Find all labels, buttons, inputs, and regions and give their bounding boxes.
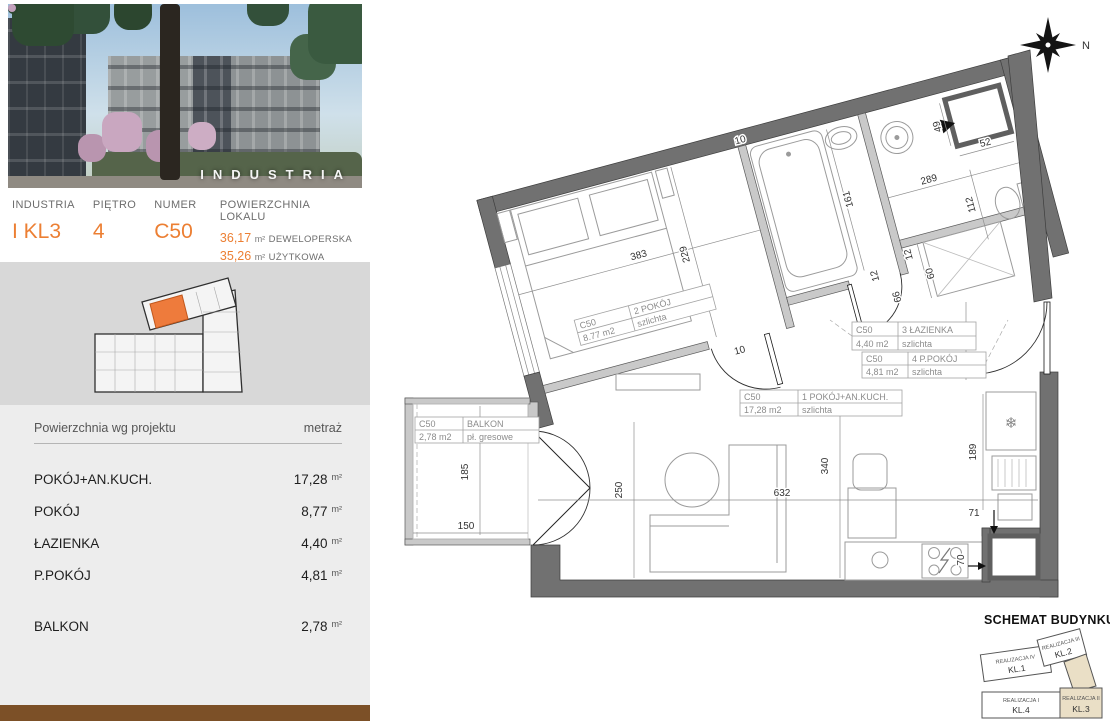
ventilation-shaft	[935, 85, 1011, 148]
dim-label: 185	[460, 463, 471, 480]
sink	[872, 552, 888, 568]
dim-label: 632	[774, 488, 791, 499]
kitchen-cabinet	[998, 494, 1032, 520]
room-label-name: 4 P.POKÓJ	[912, 354, 957, 364]
room-area: 8,77	[301, 504, 327, 519]
dim-label: 12	[869, 269, 883, 283]
room-label-name: BALKON	[467, 419, 504, 429]
dim-label: 229	[678, 244, 693, 263]
room-area-unit: m²	[332, 568, 343, 578]
room-area: 4,81	[301, 568, 327, 583]
area-table-col-right: metraż	[304, 421, 342, 435]
minimap-lower-block	[95, 334, 203, 392]
kitchen-shaft	[982, 528, 1040, 582]
bath-wc-partition	[858, 113, 909, 275]
room-label-balcony: C50 BALKON 2,78 m2 pł. gresowe	[415, 417, 539, 443]
room-label-area: 17,28 m2	[744, 405, 782, 415]
apartment-card-page: INDUSTRIA INDUSTRIA I KL3 PIĘTRO 4 NUMER…	[0, 0, 1110, 721]
developer-area-value: 36,17	[220, 231, 251, 245]
photo-blossom-trees	[8, 4, 16, 12]
floor-column: PIĘTRO 4	[93, 199, 136, 262]
usable-area-value: 35,26	[220, 249, 251, 263]
dim-label: 12	[902, 247, 916, 261]
segment-kl: KL.3	[1072, 704, 1090, 714]
segment-kl: KL.4	[1012, 705, 1030, 715]
chair	[853, 454, 887, 490]
unit-info-header: INDUSTRIA I KL3 PIĘTRO 4 NUMER C50 POWIE…	[0, 190, 370, 262]
fridge-snowflake-icon: ❄	[1005, 415, 1018, 432]
dim-label: 112	[964, 195, 979, 214]
number-column: NUMER C50	[154, 199, 202, 262]
number-label: NUMER	[154, 199, 202, 211]
room-name: POKÓJ	[34, 504, 80, 519]
room-name: BALKON	[34, 619, 89, 634]
room-label-ppokoj: C50 4 P.POKÓJ 4,81 m2 szlichta	[862, 352, 986, 378]
compass-north-label: N	[1082, 40, 1090, 52]
room-name: P.POKÓJ	[34, 568, 91, 583]
lot-area-label: POWIERZCHNIA LOKALU	[220, 199, 352, 223]
room-area-unit: m²	[332, 536, 343, 546]
room-area-table: Powierzchnia wg projektu metraż POKÓJ+AN…	[0, 405, 370, 705]
schematic-segment-kl4: REALIZACJA I KL.4	[982, 692, 1060, 718]
photo-tree-trunk	[160, 4, 180, 180]
floor-label: PIĘTRO	[93, 199, 136, 211]
table-row: BALKON 2,78m²	[34, 619, 342, 634]
induction-bolt-icon	[939, 548, 950, 573]
room-name: ŁAZIENKA	[34, 536, 99, 551]
washbasin	[823, 123, 860, 153]
room-area-unit: m²	[332, 472, 343, 482]
area-table-col-left: Powierzchnia wg projektu	[34, 421, 176, 435]
kitchen-cabinet-grill	[992, 456, 1036, 490]
leader-line	[830, 320, 852, 336]
floor-value: 4	[93, 220, 136, 244]
room-label-floor: szlichta	[902, 339, 932, 349]
dim-label: 10	[733, 344, 747, 358]
bathtub	[749, 129, 859, 293]
building-column: INDUSTRIA I KL3	[12, 199, 75, 262]
dim-label: 250	[614, 481, 625, 498]
photo-building-left	[8, 18, 86, 188]
room-name: POKÓJ+AN.KUCH.	[34, 472, 152, 487]
schematic-title: SCHEMAT BUDYNKU	[984, 613, 1110, 627]
exterior-wall-right-lower	[1040, 372, 1058, 597]
table-row: P.POKÓJ 4,81m²	[34, 568, 342, 583]
left-info-panel: INDUSTRIA INDUSTRIA I KL3 PIĘTRO 4 NUMER…	[0, 0, 370, 721]
exterior-wall-top	[477, 55, 1022, 215]
lot-area-column: POWIERZCHNIA LOKALU 36,17 m² DEWELOPERSK…	[220, 199, 352, 262]
room-area-unit: m²	[332, 504, 343, 514]
room-label-area: 4,81 m2	[866, 367, 899, 377]
building-label: INDUSTRIA	[12, 199, 75, 211]
table-row: ŁAZIENKA 4,40m²	[34, 536, 342, 551]
room-area: 2,78	[301, 619, 327, 634]
dim-label: 70	[956, 554, 967, 566]
building-photo: INDUSTRIA	[8, 4, 362, 188]
usable-area-unit: m²	[255, 252, 266, 262]
segment-name: REALIZACJA II	[1062, 696, 1100, 702]
bedroom-bath-partition	[738, 145, 794, 329]
room-label-floor: szlichta	[802, 405, 832, 415]
room-label-unit: C50	[419, 419, 436, 429]
desk	[848, 488, 896, 538]
developer-area-row: 36,17 m² DEWELOPERSKA	[220, 230, 352, 248]
room-label-unit: C50	[856, 325, 873, 335]
bedroom-window	[495, 264, 539, 376]
washing-machine	[877, 118, 916, 157]
room-label-unit: C50	[744, 392, 761, 402]
number-value: C50	[154, 220, 202, 244]
developer-area-kind: DEWELOPERSKA	[269, 234, 352, 245]
developer-area-unit: m²	[255, 234, 266, 244]
round-table	[665, 453, 719, 507]
dim-label: 66	[891, 290, 905, 304]
building-value: I KL3	[12, 220, 75, 244]
balcony-door	[533, 431, 590, 545]
room-area: 4,40	[301, 536, 327, 551]
room-label-bathroom: C50 3 ŁAZIENKA 4,40 m2 szlichta	[852, 322, 976, 350]
room-area-unit: m²	[332, 619, 343, 629]
table-row: POKÓJ+AN.KUCH. 17,28m²	[34, 472, 342, 487]
dim-label: 150	[458, 521, 475, 532]
room-label-area: 2,78 m2	[419, 432, 452, 442]
segment-name: REALIZACJA I	[1003, 698, 1040, 704]
room-label-bedroom: C50 2 POKÓJ 8.77 m2 szlichta	[574, 284, 716, 345]
dim-label: 189	[968, 443, 979, 460]
minimap-svg	[0, 262, 370, 405]
industria-wordmark: INDUSTRIA	[200, 167, 352, 182]
dim-label: 71	[968, 508, 980, 519]
schematic-segment-kl3-highlighted: REALIZACJA II KL.3	[1060, 688, 1102, 718]
area-table-header: Powierzchnia wg projektu metraż	[34, 421, 342, 444]
room-label-area: 4,40 m2	[856, 339, 889, 349]
floor-overview-minimap	[0, 262, 370, 405]
dim-label: 340	[820, 457, 831, 474]
exterior-wall-bottom	[531, 545, 1058, 597]
leader-line	[985, 320, 1008, 364]
room-label-name: 3 ŁAZIENKA	[902, 325, 953, 335]
nightstand-right	[655, 168, 674, 198]
bedroom-door-leaf	[764, 333, 782, 385]
room-label-name: 1 POKÓJ+AN.KUCH.	[802, 392, 888, 402]
building-schematic: SCHEMAT BUDYNKU REALIZACJA IV KL.1 REALI…	[980, 613, 1110, 718]
room-label-living: C50 1 POKÓJ+AN.KUCH. 17,28 m2 szlichta	[740, 390, 902, 416]
room-area: 17,28	[294, 472, 328, 487]
table-row: POKÓJ 8,77m²	[34, 504, 342, 519]
floor-plan-svg: N	[370, 0, 1110, 721]
room-label-unit: C50	[866, 354, 883, 364]
tv-bench	[616, 374, 700, 390]
room-label-floor: szlichta	[912, 367, 942, 377]
room-label-floor: pł. gresowe	[467, 432, 513, 442]
bottom-accent-bar	[0, 705, 370, 721]
dim-label: 161	[841, 189, 856, 208]
floor-plan-area: N	[370, 0, 1110, 721]
